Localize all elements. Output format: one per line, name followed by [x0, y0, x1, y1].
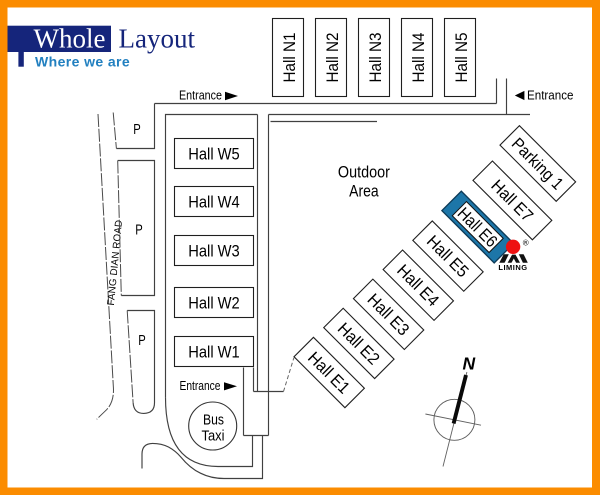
svg-text:Outdoor: Outdoor [338, 162, 390, 181]
svg-text:Entrance: Entrance [180, 378, 221, 393]
svg-text:®: ® [523, 239, 529, 248]
svg-text:P: P [133, 122, 141, 138]
svg-text:N: N [463, 353, 476, 373]
svg-text:P: P [135, 222, 143, 238]
svg-text:Hall N3: Hall N3 [366, 33, 385, 83]
svg-text:Layout: Layout [119, 24, 196, 54]
svg-text:Entrance: Entrance [179, 88, 222, 103]
svg-text:Hall W4: Hall W4 [188, 193, 240, 212]
svg-text:Where we are: Where we are [35, 54, 130, 70]
svg-text:Hall N1: Hall N1 [280, 33, 299, 83]
svg-text:Hall W1: Hall W1 [188, 343, 240, 362]
svg-text:Hall N5: Hall N5 [452, 33, 471, 83]
svg-text:Bus: Bus [203, 413, 224, 429]
svg-text:Hall W3: Hall W3 [188, 242, 240, 261]
svg-text:Whole: Whole [34, 24, 106, 54]
svg-text:Hall N4: Hall N4 [409, 33, 428, 83]
svg-text:P: P [138, 333, 146, 349]
svg-text:LIMING: LIMING [498, 263, 527, 272]
svg-text:Entrance: Entrance [527, 88, 574, 103]
svg-text:Hall W5: Hall W5 [188, 145, 240, 164]
svg-text:Hall N2: Hall N2 [323, 33, 342, 83]
svg-text:Area: Area [349, 182, 379, 201]
svg-text:Hall W2: Hall W2 [188, 294, 240, 313]
svg-text:Taxi: Taxi [202, 429, 225, 445]
